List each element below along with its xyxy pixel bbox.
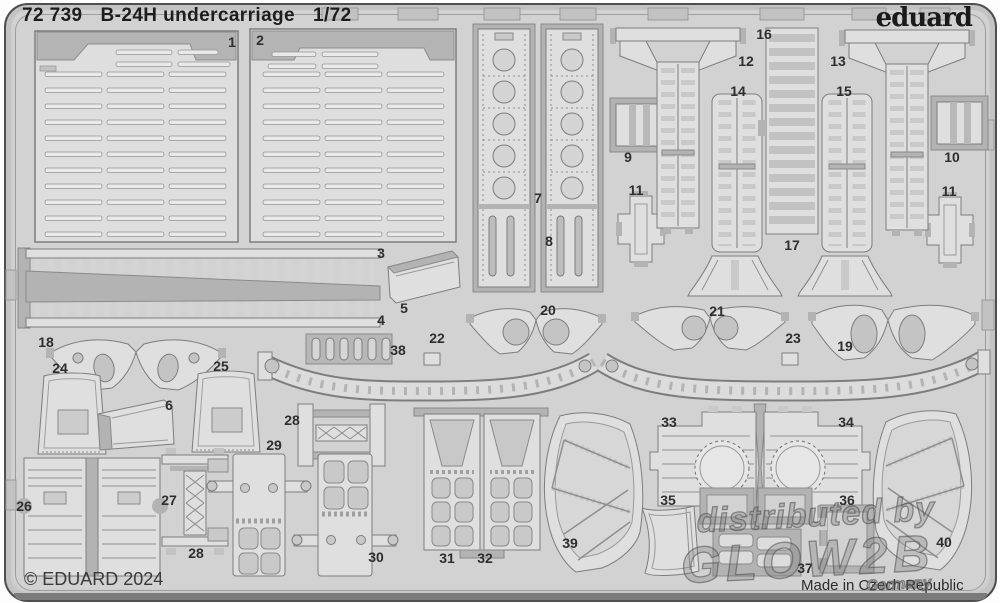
scale-label: 1/72	[313, 5, 352, 26]
part-26-door-panel	[16, 458, 168, 576]
catalog-number: 72 739	[22, 5, 83, 26]
product-photo-page: 72 739B-24H undercarriage1/72 eduard 123…	[0, 0, 1000, 603]
part-19-wing-bracket	[808, 305, 979, 360]
part-21-wing-bracket	[631, 307, 789, 350]
part-10-frame	[931, 96, 988, 150]
part-24-pad	[38, 373, 106, 454]
part-25-pad	[192, 371, 260, 452]
part-30-panel	[292, 454, 398, 576]
part-2-door-panel	[250, 29, 456, 242]
part-31-32-pair	[414, 408, 548, 558]
part-11-cross-right	[925, 192, 975, 268]
part-5-wedge-plate	[388, 251, 460, 303]
part-1-door-panel	[35, 31, 238, 242]
copyright-text: © EDUARD 2024	[24, 569, 163, 590]
part-7-strip	[473, 24, 535, 292]
small-brackets	[208, 459, 228, 541]
eduard-logo: eduard	[876, 3, 972, 33]
part-16-rung-strip	[758, 28, 818, 234]
product-title: B-24H undercarriage	[101, 5, 296, 26]
part-38-slot-strip	[306, 334, 392, 364]
distributor-watermark: distributed by GLOW2B Germany	[626, 482, 1000, 603]
part-8-strip	[541, 24, 603, 292]
part-6-wedge-plate	[98, 400, 174, 450]
part-3-4-ladder-rails	[18, 248, 380, 328]
sheet-title: 72 739B-24H undercarriage1/72	[22, 5, 370, 27]
watermark-germany: Germany	[866, 574, 932, 594]
part-20-wing-bracket	[466, 309, 606, 354]
